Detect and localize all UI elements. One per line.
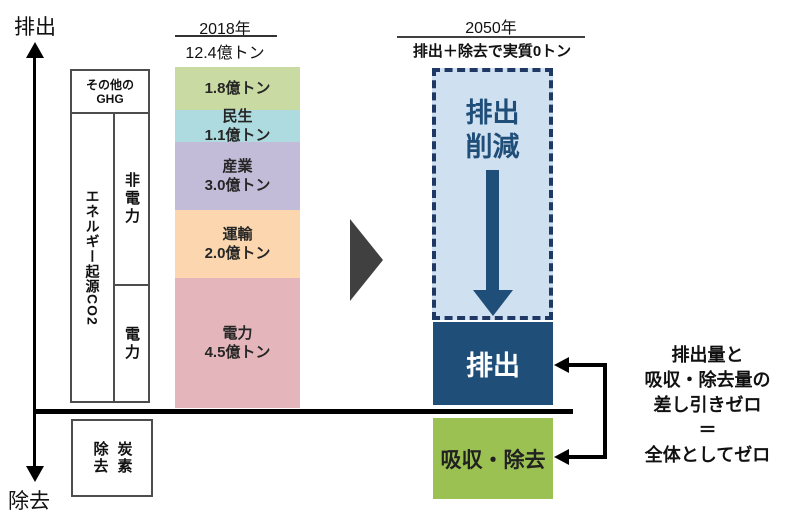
segment-label: 電力 4.5億トン [205, 324, 271, 362]
bracket-arrow-left-bottom-icon [554, 449, 569, 465]
bar-segment-power: 電力 4.5億トン [175, 278, 300, 408]
bracket-top-line [568, 363, 607, 367]
bar-segment-transport: 運輸 2.0億トン [175, 210, 300, 278]
net-zero-note: 排出量と 吸収・除去量の 差し引きゼロ ＝ 全体としてゼロ [615, 343, 800, 468]
power-split-column: 非電力 電力 [115, 114, 148, 401]
horizontal-zero-axis-line [33, 409, 573, 414]
emission-reduction-label: 排出 削減 [436, 96, 549, 164]
segment-label: 1.8億トン [205, 79, 271, 98]
segment-label: 運輸 2.0億トン [205, 225, 271, 263]
power-cell: 電力 [115, 286, 148, 401]
carbon-neutrality-diagram: 排出 除去 その他の GHG エネルギー起源CO2 非電力 電力 除去 炭 [0, 0, 800, 525]
carbon-removal-box: 除去 炭素 [71, 419, 153, 497]
year-2018-underline [175, 35, 277, 37]
note-line-2: 吸収・除去量の [615, 368, 800, 393]
bar-segment-industry: 産業 3.0億トン [175, 142, 300, 210]
axis-arrow-down-icon [26, 466, 44, 482]
non-power-cell: 非電力 [115, 114, 148, 286]
non-power-label: 非電力 [121, 172, 142, 226]
energy-co2-cell: エネルギー起源CO2 [72, 114, 115, 401]
power-label: 電力 [121, 326, 142, 362]
total-2018-label: 12.4億トン [160, 39, 290, 63]
down-arrow-head-icon [473, 290, 513, 316]
bar-segment-other-ghg: 1.8億トン [175, 67, 300, 110]
note-line-5: 全体としてゼロ [615, 443, 800, 468]
segment-label: 産業 3.0億トン [205, 157, 271, 195]
bar-segment-residential: 民生 1.1億トン [175, 110, 300, 142]
emission-label: 排出 [466, 344, 520, 383]
other-ghg-label-line2: GHG [96, 92, 123, 106]
carbon-removal-label-right: 炭素 [114, 441, 135, 475]
vertical-axis-line [33, 56, 36, 468]
segment-label: 民生 1.1億トン [205, 107, 271, 145]
net-zero-subtitle: 排出＋除去で実質0トン [392, 40, 592, 61]
axis-top-label: 排出 [14, 11, 56, 41]
note-line-1: 排出量と [615, 343, 800, 368]
carbon-removal-label-left: 除去 [90, 441, 111, 475]
stacked-bar-2018: 1.8億トン 民生 1.1億トン 産業 3.0億トン 運輸 2.0億トン 電力 [175, 67, 300, 408]
bracket-vertical-line [603, 363, 607, 459]
note-line-4: ＝ [615, 418, 800, 443]
bracket-arrow-left-top-icon [554, 357, 569, 373]
year-2050-label: 2050年 [397, 14, 585, 38]
down-arrow-icon [486, 170, 499, 290]
energy-co2-label: エネルギー起源CO2 [83, 189, 103, 326]
absorption-removal-label: 吸収・除去 [441, 444, 546, 474]
energy-co2-columns: エネルギー起源CO2 非電力 電力 [72, 114, 148, 401]
note-line-3: 差し引きゼロ [615, 393, 800, 418]
other-ghg-label-line1: その他の [86, 78, 134, 92]
bracket-bottom-line [568, 455, 607, 459]
ghg-classification-box: その他の GHG エネルギー起源CO2 非電力 電力 [70, 69, 150, 403]
year-2050-underline [397, 36, 585, 38]
absorption-removal-box: 吸収・除去 [433, 418, 553, 499]
emission-box: 排出 [433, 322, 553, 405]
right-triangle-icon [350, 219, 383, 301]
other-ghg-cell: その他の GHG [72, 71, 148, 114]
axis-bottom-label: 除去 [8, 485, 50, 515]
